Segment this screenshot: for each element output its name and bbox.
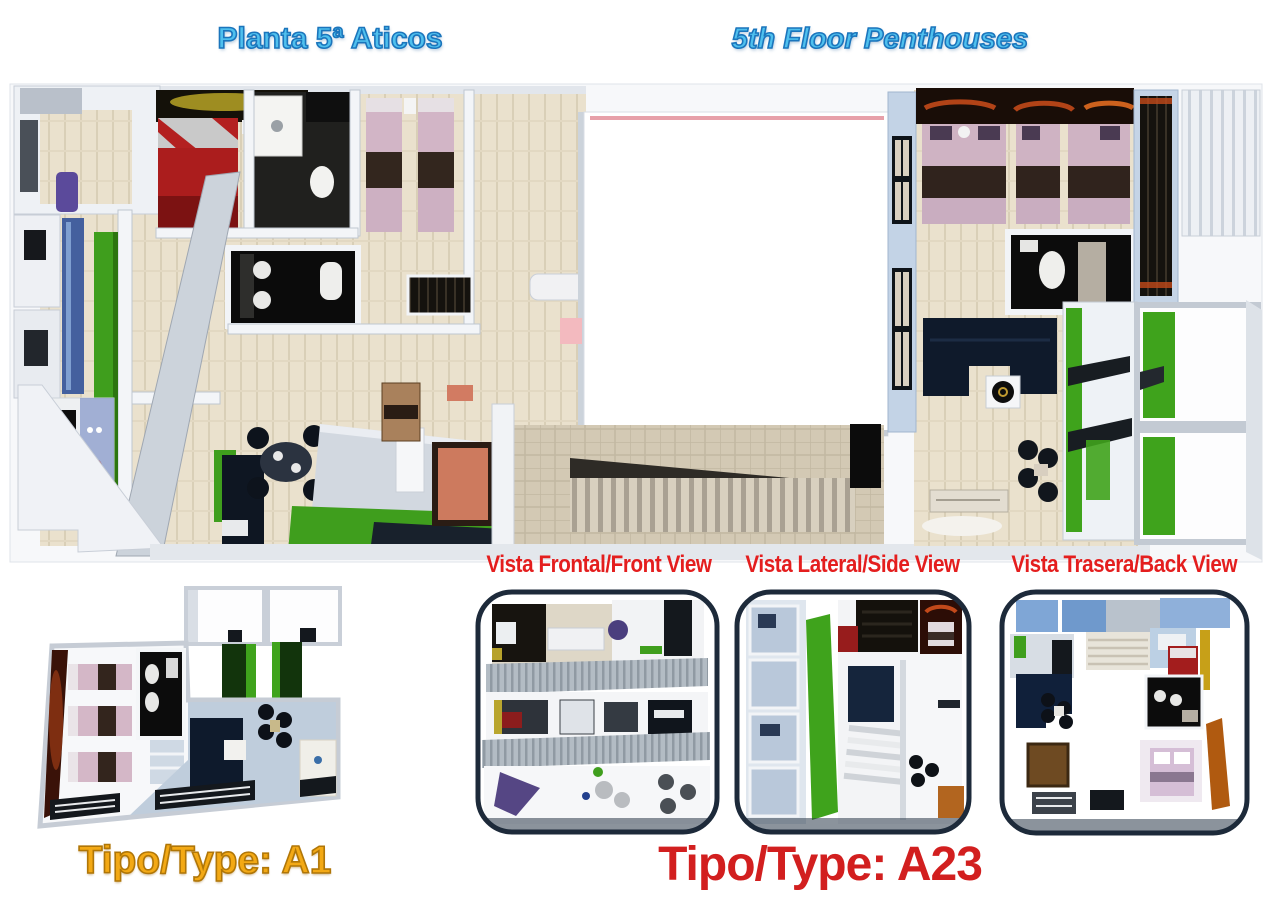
window-wall bbox=[888, 92, 916, 432]
navy-media-unit bbox=[222, 455, 264, 557]
kitchen-counter bbox=[930, 490, 1008, 512]
window bbox=[892, 136, 912, 224]
thumbnail-front-view bbox=[478, 592, 717, 832]
pink-bed bbox=[1016, 124, 1060, 224]
thumbnail-back-view bbox=[1002, 592, 1247, 833]
page: Planta 5ª Aticos 5th Floor Penthouses Vi… bbox=[0, 0, 1280, 905]
closet bbox=[408, 276, 472, 314]
terrace-boxes bbox=[1137, 300, 1262, 560]
stairs bbox=[570, 478, 855, 532]
a1-floorplan bbox=[40, 588, 340, 826]
top-rooms bbox=[186, 588, 340, 644]
purple-chair bbox=[56, 172, 78, 212]
triple-bedroom bbox=[916, 88, 1134, 224]
bathroom-top bbox=[250, 92, 350, 230]
pink-bed bbox=[68, 664, 132, 690]
planters bbox=[222, 642, 302, 706]
louver-wall bbox=[1182, 90, 1260, 236]
pink-bed bbox=[418, 98, 454, 232]
planter-column bbox=[1063, 302, 1137, 540]
window bbox=[892, 268, 912, 390]
black-appliance bbox=[850, 424, 880, 488]
bathroom-black bbox=[228, 248, 358, 326]
page-title-spanish: Planta 5ª Aticos bbox=[160, 22, 500, 56]
main-floorplan bbox=[10, 84, 1262, 562]
pink-bed bbox=[1068, 124, 1130, 224]
unit-type-a23-label: Tipo/Type: A23 bbox=[560, 837, 1080, 892]
round-rug bbox=[922, 516, 1002, 536]
front-view-label: Vista Frontal/Front View bbox=[468, 551, 728, 579]
courtyard bbox=[560, 112, 888, 436]
back-view-label: Vista Trasera/Back View bbox=[992, 551, 1256, 579]
pink-bed bbox=[922, 124, 1006, 224]
pink-bed bbox=[366, 98, 402, 232]
entry-room bbox=[14, 86, 160, 214]
page-title-english: 5th Floor Penthouses bbox=[695, 23, 1065, 56]
side-view-label-text: Vista Lateral/Side View bbox=[746, 551, 960, 579]
side-table bbox=[986, 376, 1020, 408]
bathroom bbox=[1008, 232, 1134, 312]
pink-bed bbox=[68, 706, 132, 736]
pink-edge-line bbox=[590, 116, 884, 120]
front-view-label-text: Vista Frontal/Front View bbox=[486, 551, 711, 579]
white-bench bbox=[530, 274, 586, 300]
back-view-label-text: Vista Trasera/Back View bbox=[1011, 551, 1237, 579]
thumbnail-side-view bbox=[737, 592, 969, 832]
pink-block bbox=[560, 318, 582, 344]
closet-strip bbox=[1134, 90, 1178, 312]
side-view-label: Vista Lateral/Side View bbox=[727, 551, 979, 579]
pink-bed bbox=[68, 752, 132, 782]
blue-glass-panel bbox=[62, 218, 84, 394]
floorplan-artwork bbox=[0, 0, 1280, 905]
unit-type-a1-label: Tipo/Type: A1 bbox=[35, 839, 375, 883]
